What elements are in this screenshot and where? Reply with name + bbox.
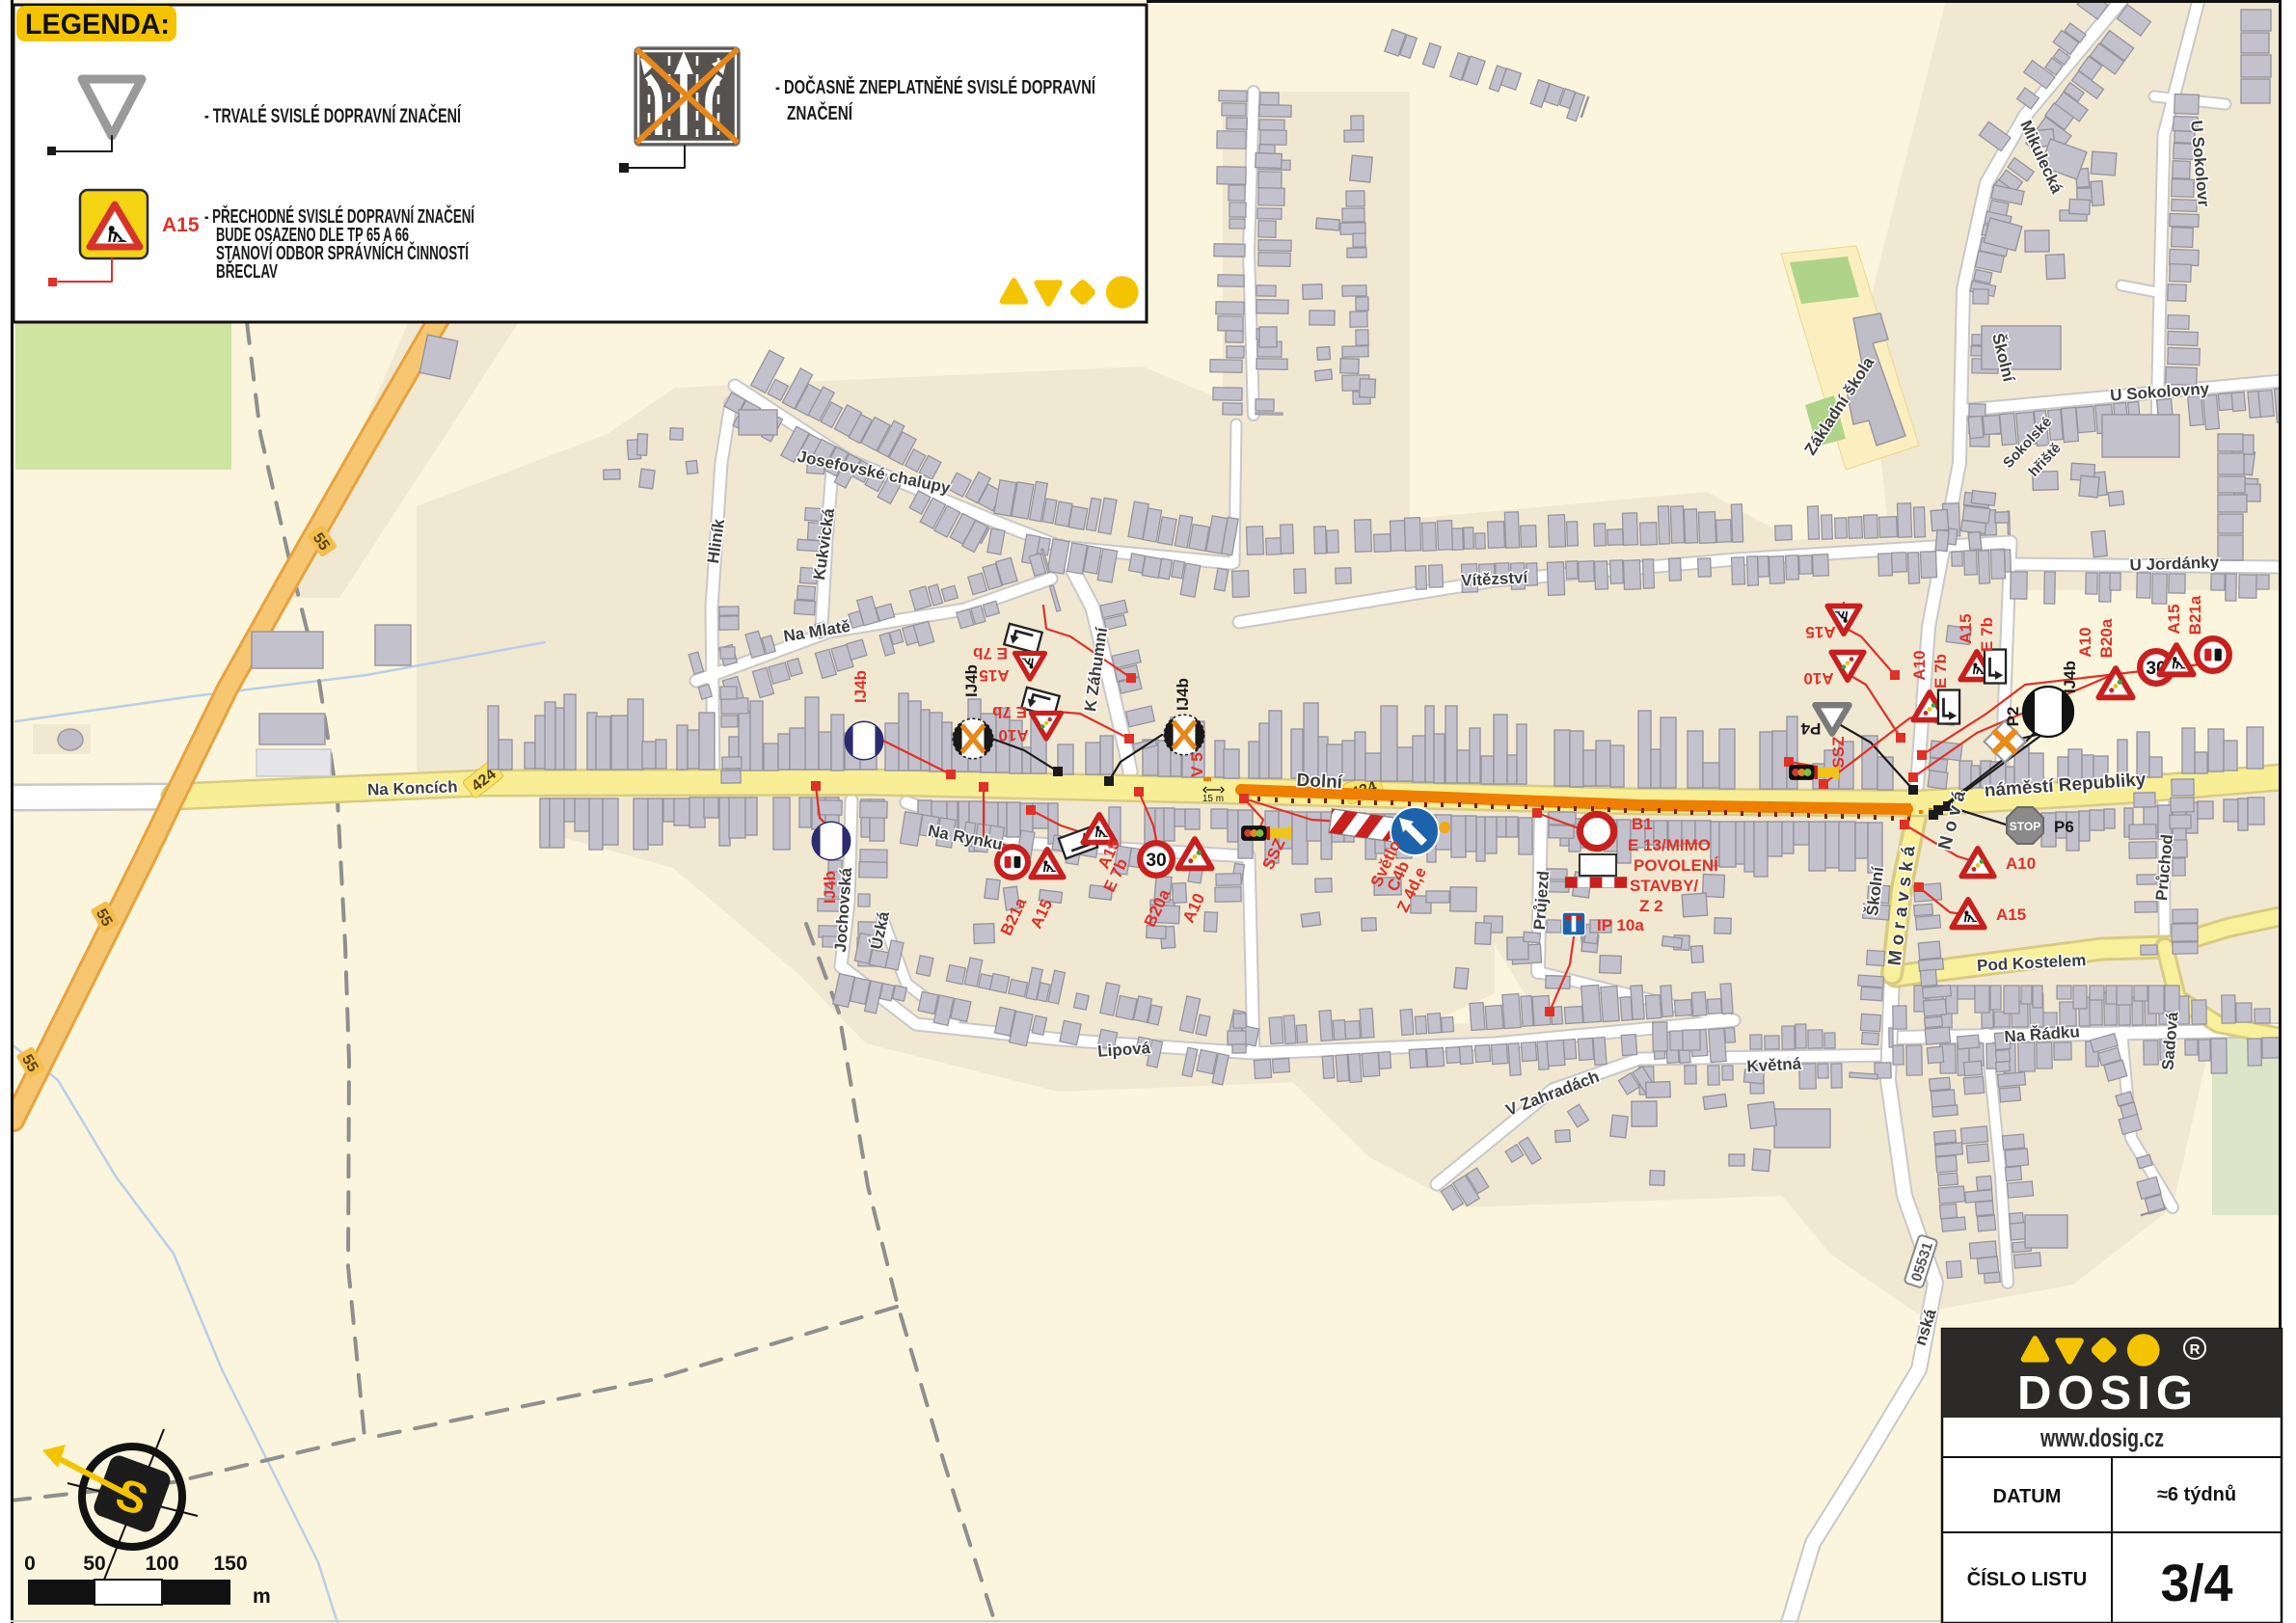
svg-text:E 7b: E 7b xyxy=(973,644,1008,663)
svg-text:50: 50 xyxy=(83,1553,105,1575)
svg-text:V 5: V 5 xyxy=(1188,752,1206,777)
svg-text:STAVBY/: STAVBY/ xyxy=(1630,877,1698,895)
svg-text:- DOČASNĚ ZNEPLATNĚNÉ SVISLÉ D: - DOČASNĚ ZNEPLATNĚNÉ SVISLÉ DOPRAVNÍ xyxy=(775,75,1095,98)
svg-text:A10: A10 xyxy=(2006,854,2036,873)
svg-text:15 m: 15 m xyxy=(1202,794,1224,804)
svg-text:LEGENDA:: LEGENDA: xyxy=(25,9,170,41)
svg-text:BŘECLAV: BŘECLAV xyxy=(216,259,278,283)
svg-text:A15: A15 xyxy=(1805,623,1835,641)
svg-text:ČÍSLO LISTU: ČÍSLO LISTU xyxy=(1967,1567,2087,1590)
svg-text:3/4: 3/4 xyxy=(2160,1555,2232,1612)
svg-text:www.dosig.cz: www.dosig.cz xyxy=(2039,1423,2164,1452)
svg-text:P6: P6 xyxy=(2054,818,2074,836)
svg-text:POVOLENÍ: POVOLENÍ xyxy=(1634,856,1719,875)
svg-text:A15: A15 xyxy=(1957,613,1975,643)
svg-text:P4: P4 xyxy=(1800,719,1821,738)
svg-text:Vítězství: Vítězství xyxy=(1461,568,1529,590)
svg-text:A15: A15 xyxy=(2165,604,2183,634)
svg-text:SSZ: SSZ xyxy=(1829,736,1848,768)
svg-text:R: R xyxy=(2190,1341,2201,1358)
svg-text:Květná: Květná xyxy=(1746,1055,1802,1076)
svg-text:≈6 týdnů: ≈6 týdnů xyxy=(2157,1484,2236,1505)
svg-text:IJ4b: IJ4b xyxy=(851,670,870,703)
svg-text:0: 0 xyxy=(24,1553,36,1575)
svg-text:A15: A15 xyxy=(162,214,200,236)
svg-text:E 13/MIMO: E 13/MIMO xyxy=(1628,836,1711,854)
svg-text:B21a: B21a xyxy=(2186,595,2204,635)
svg-text:E 7b: E 7b xyxy=(1931,654,1950,689)
svg-text:B20a: B20a xyxy=(2097,618,2116,658)
svg-text:E 7b: E 7b xyxy=(992,703,1027,721)
svg-text:Lipová: Lipová xyxy=(1097,1039,1152,1061)
svg-text:IJ4b: IJ4b xyxy=(2061,661,2079,693)
svg-text:B1: B1 xyxy=(1632,815,1653,833)
svg-text:IP 10a: IP 10a xyxy=(1597,916,1644,934)
svg-text:U Jordánky: U Jordánky xyxy=(2129,553,2220,574)
svg-text:A10: A10 xyxy=(2076,627,2094,657)
svg-text:m: m xyxy=(253,1585,271,1608)
svg-text:DOSIG: DOSIG xyxy=(2017,1367,2199,1420)
svg-text:E 7b: E 7b xyxy=(1978,617,1996,652)
svg-text:A10: A10 xyxy=(998,726,1028,744)
svg-text:150: 150 xyxy=(213,1553,247,1575)
svg-text:P2: P2 xyxy=(2004,707,2022,727)
svg-text:DATUM: DATUM xyxy=(1993,1486,2062,1507)
svg-text:100: 100 xyxy=(145,1553,178,1575)
svg-text:Z 2: Z 2 xyxy=(1639,897,1663,915)
svg-text:IJ4b: IJ4b xyxy=(962,664,981,697)
svg-text:ZNAČENÍ: ZNAČENÍ xyxy=(787,101,852,124)
svg-text:A10: A10 xyxy=(1910,650,1929,680)
svg-text:A10: A10 xyxy=(1803,669,1833,688)
svg-text:IJ4b: IJ4b xyxy=(1174,678,1192,711)
svg-text:- TRVALÉ SVISLÉ DOPRAVNÍ ZNAČE: - TRVALÉ SVISLÉ DOPRAVNÍ ZNAČENÍ xyxy=(204,104,462,127)
svg-text:A15: A15 xyxy=(979,666,1009,685)
svg-text:A15: A15 xyxy=(1996,906,2026,924)
svg-text:Dolní: Dolní xyxy=(1296,771,1343,793)
svg-text:Na Koncích: Na Koncích xyxy=(367,777,458,798)
